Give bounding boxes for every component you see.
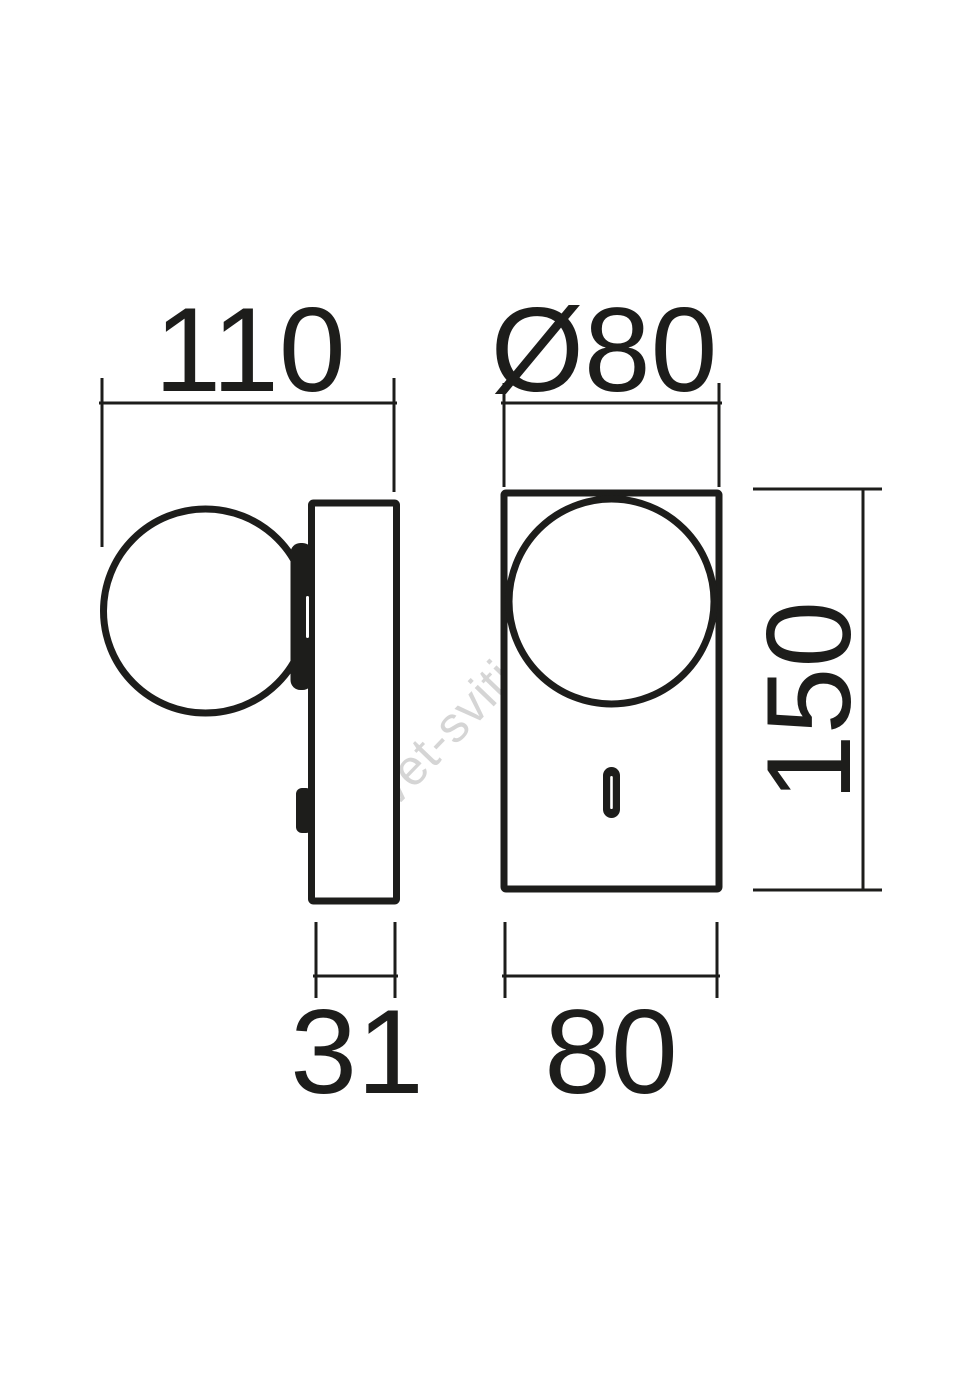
switch-side xyxy=(296,788,312,833)
dim-label-plate-depth: 31 xyxy=(290,985,423,1119)
dim-sphere-diameter: Ø80 xyxy=(491,283,722,487)
dim-label-overall-depth: 110 xyxy=(154,283,345,417)
dim-body-height: 150 xyxy=(742,489,882,890)
switch-front-slit xyxy=(610,776,613,809)
sphere-holder xyxy=(291,543,313,690)
sphere-holder-slit xyxy=(306,596,309,638)
dim-label-body-height: 150 xyxy=(742,601,876,801)
drawing-canvas: svet-svitidel.cz 1 xyxy=(0,0,980,1400)
dim-body-width: 80 xyxy=(502,922,720,1119)
dim-label-body-width: 80 xyxy=(544,985,677,1119)
front-view xyxy=(504,493,719,889)
technical-drawing-svg: svet-svitidel.cz 1 xyxy=(0,0,980,1400)
side-view xyxy=(104,503,397,901)
mount-plate-side xyxy=(312,503,397,901)
dim-plate-depth: 31 xyxy=(290,922,423,1119)
front-body xyxy=(504,493,719,889)
dim-label-sphere-diameter: Ø80 xyxy=(491,283,718,417)
sphere-side-outline xyxy=(104,509,308,713)
